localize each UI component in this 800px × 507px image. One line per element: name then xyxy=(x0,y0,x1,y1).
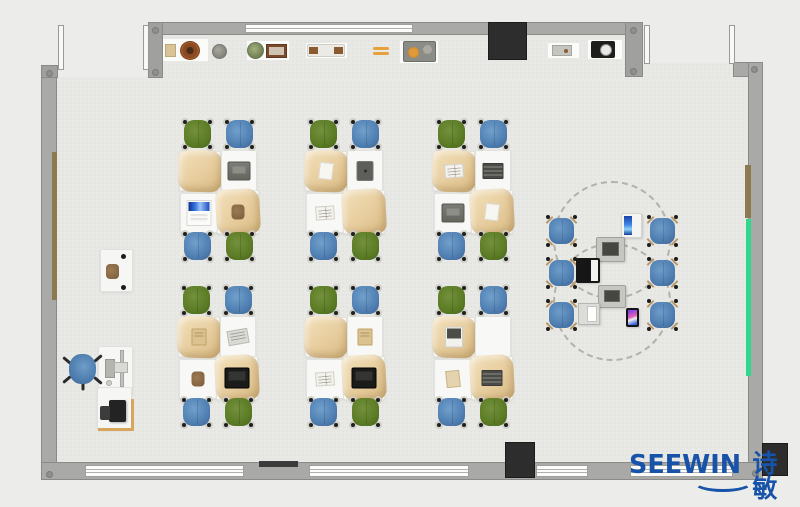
student-desk xyxy=(347,316,383,358)
door-leaf-top-right-b xyxy=(729,25,735,64)
window-bottom-3 xyxy=(536,465,588,477)
brand-logo-cn: 诗敏 xyxy=(752,452,800,502)
device-tablet-color xyxy=(626,308,639,327)
shelf-item-bench-brown xyxy=(307,44,345,57)
student-desk xyxy=(221,150,257,192)
student-desk xyxy=(220,316,256,358)
schoolbag-cover xyxy=(177,149,222,192)
desk-with-schoolbag xyxy=(305,317,347,357)
blue-stool xyxy=(546,299,577,331)
desk-with-schoolbag xyxy=(471,356,513,400)
green-chair xyxy=(350,230,381,263)
schoolbag-cover xyxy=(341,188,387,236)
desk-item-book-open xyxy=(315,371,335,386)
green-chair xyxy=(181,284,212,317)
green-chair xyxy=(350,396,381,429)
brand-logo-swoosh xyxy=(693,472,753,492)
bag-on-desk xyxy=(106,264,119,279)
desk-group-6 xyxy=(433,284,511,429)
desk-group-1 xyxy=(179,118,257,263)
student-desk xyxy=(179,359,217,399)
green-chair xyxy=(182,118,213,151)
shelf-item-plant-green xyxy=(247,42,264,59)
green-chair xyxy=(223,396,254,429)
brand-logo: SEEWIN 诗敏 xyxy=(629,452,800,502)
desk-with-schoolbag xyxy=(305,151,347,191)
blue-chair xyxy=(182,230,213,263)
blue-stool xyxy=(647,257,678,289)
wall-hinge-dot xyxy=(152,27,159,34)
desk-trim xyxy=(98,428,134,431)
green-board-strip xyxy=(746,219,751,376)
green-chair xyxy=(308,284,339,317)
device-laptop-black-open xyxy=(576,258,600,283)
blue-chair xyxy=(181,396,212,429)
desk-item-laptop-black xyxy=(352,368,377,389)
shelf-item-machine-gray xyxy=(403,41,436,62)
student-desk xyxy=(475,150,511,192)
desk-item-laptop-white-dark xyxy=(445,327,463,348)
desk-item-paper xyxy=(484,203,500,222)
green-chair xyxy=(224,230,255,263)
student-desk xyxy=(306,193,344,233)
green-chair xyxy=(308,118,339,151)
blue-stool xyxy=(647,299,678,331)
desk-leg xyxy=(121,254,126,259)
door-leaf-top-right-a xyxy=(644,25,650,64)
desk-with-schoolbag xyxy=(433,151,475,191)
desk-item-laptop-black xyxy=(225,368,250,389)
student-desk xyxy=(180,193,218,233)
desk-item-tablet-dark xyxy=(357,161,374,181)
desk-item-paper xyxy=(318,162,334,181)
student-desk xyxy=(434,193,472,233)
desk-item-pouch-brown xyxy=(192,372,205,387)
desk-with-schoolbag xyxy=(343,190,385,234)
desk-group-2 xyxy=(305,118,383,263)
student-desk xyxy=(347,150,383,192)
desk-with-schoolbag xyxy=(216,356,258,400)
device-copier xyxy=(596,237,625,262)
wall-hinge-dot xyxy=(630,27,637,34)
blue-stool xyxy=(647,215,678,247)
floorplan-canvas: SEEWIN 诗敏 xyxy=(0,0,800,507)
desk-with-schoolbag xyxy=(343,356,385,400)
student-desk xyxy=(475,316,511,358)
window-top xyxy=(245,24,413,33)
device-copier xyxy=(598,285,626,308)
teacher-chair xyxy=(66,351,99,389)
student-desk xyxy=(306,359,344,399)
schoolbag-cover xyxy=(303,315,348,358)
desk-item-book-open xyxy=(315,205,335,220)
desk-trim xyxy=(131,399,134,430)
desk-group-3 xyxy=(433,118,511,263)
blue-chair xyxy=(478,284,509,317)
printer-tray xyxy=(100,406,110,420)
desk-item-notebook-dark xyxy=(483,163,504,179)
bottom-cabinet-mid xyxy=(505,442,535,478)
shelf-item-pot-gray xyxy=(212,44,227,59)
desk-item-newspaper xyxy=(226,328,249,346)
desk-item-pouch-brown xyxy=(232,205,245,220)
green-chair xyxy=(478,396,509,429)
desk-group-5 xyxy=(305,284,383,429)
furniture-layer xyxy=(0,0,800,507)
shelf-item-tablet-gray xyxy=(552,45,572,56)
window-bottom-2 xyxy=(309,465,469,477)
wall-hinge-dot xyxy=(751,66,758,73)
bottom-wall-dark-bar xyxy=(259,461,298,467)
device-laptop-white-open xyxy=(578,303,600,325)
desk-item-book-tan xyxy=(358,329,373,346)
desk-with-schoolbag xyxy=(178,317,220,357)
blue-chair xyxy=(308,230,339,263)
wood-panel-left xyxy=(52,152,57,300)
blue-stool xyxy=(546,257,577,289)
green-chair xyxy=(478,230,509,263)
desk-group-4 xyxy=(178,284,256,429)
desk-item-laptop-blue xyxy=(187,200,212,226)
blue-chair xyxy=(223,284,254,317)
blue-stool xyxy=(546,215,577,247)
blue-chair xyxy=(308,396,339,429)
wall-display-screen xyxy=(488,22,527,60)
blue-chair xyxy=(224,118,255,151)
desk-item-book-open xyxy=(444,163,464,178)
desk-item-laptop-gray xyxy=(442,204,465,223)
desk-with-schoolbag xyxy=(179,151,221,191)
desk-item-book-tan xyxy=(192,329,207,346)
student-desk xyxy=(434,359,472,399)
desk-item-notebook-dark xyxy=(482,370,503,386)
blue-chair xyxy=(478,118,509,151)
shelf-item-bars-orange xyxy=(373,47,389,55)
door-leaf-top-left-a xyxy=(58,25,64,70)
wall-hinge-dot xyxy=(630,68,637,75)
shelf-item-frame-brown xyxy=(266,44,287,58)
monitor-stand xyxy=(114,362,128,373)
wall-hinge-dot xyxy=(46,70,53,77)
shelf-item-bowl-brown xyxy=(180,41,200,60)
green-chair xyxy=(436,118,467,151)
shelf-item-device-black xyxy=(591,41,615,58)
mouse xyxy=(106,380,112,386)
blue-chair xyxy=(436,230,467,263)
window-bottom-1 xyxy=(85,465,244,477)
door-leaf-top-left-b xyxy=(143,25,149,70)
blue-chair xyxy=(436,396,467,429)
device-tablet-blue xyxy=(621,213,642,238)
desk-with-schoolbag xyxy=(471,190,513,234)
green-chair xyxy=(436,284,467,317)
wood-panel-right xyxy=(745,165,751,218)
wall-hinge-dot xyxy=(46,471,53,478)
shelf-item-box-tan xyxy=(165,44,176,57)
desk-item-laptop-gray xyxy=(228,162,251,181)
desk-item-paper-tan xyxy=(445,370,461,388)
blue-chair xyxy=(350,118,381,151)
blue-chair xyxy=(350,284,381,317)
printer xyxy=(109,400,126,422)
desk-with-schoolbag xyxy=(217,190,259,234)
desk-leg xyxy=(121,285,126,290)
wall-hinge-dot xyxy=(152,69,159,76)
desk-with-schoolbag xyxy=(433,317,475,357)
